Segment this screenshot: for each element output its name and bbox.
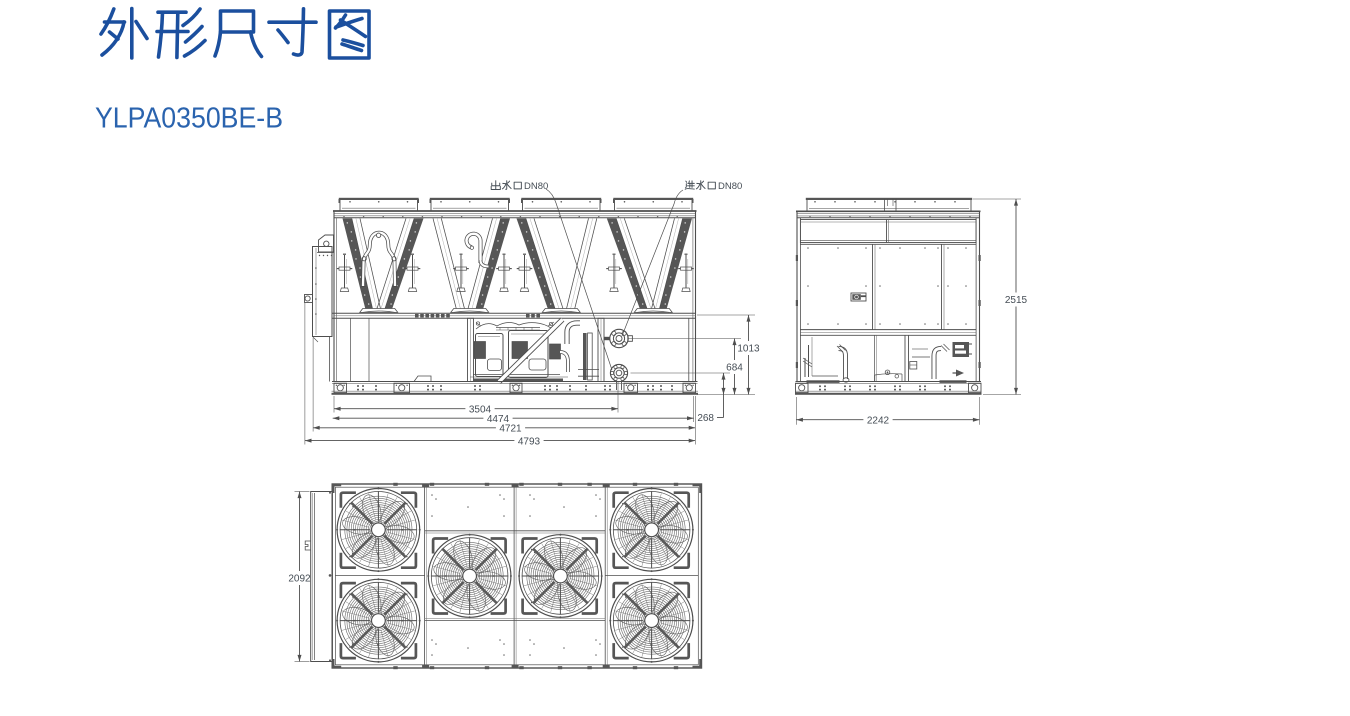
svg-text:YLPA0350BE-B: YLPA0350BE-B: [95, 103, 283, 135]
svg-text:2242: 2242: [867, 415, 890, 426]
svg-text:4721: 4721: [499, 424, 522, 435]
svg-text:268: 268: [697, 413, 714, 424]
svg-text:684: 684: [726, 363, 743, 374]
svg-text:2092: 2092: [288, 574, 311, 585]
svg-text:4793: 4793: [518, 436, 541, 447]
svg-text:1013: 1013: [737, 344, 760, 355]
svg-text:DN80: DN80: [718, 181, 742, 192]
svg-text:2515: 2515: [1005, 295, 1028, 306]
svg-text:DN80: DN80: [524, 181, 548, 192]
